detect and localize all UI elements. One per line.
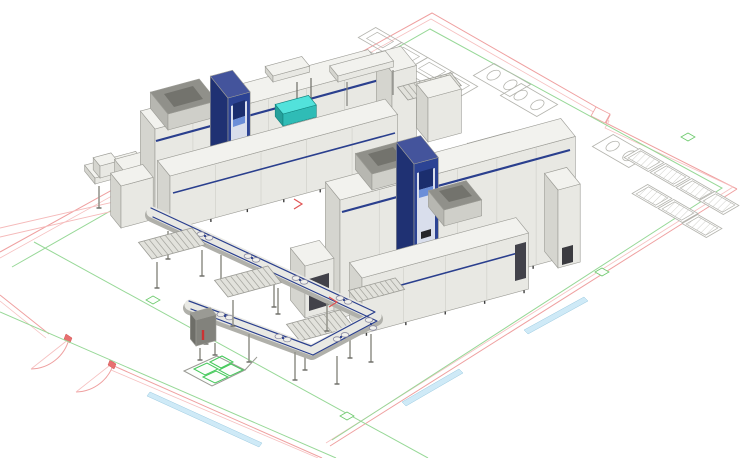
plan-symbol-kettle[interactable]	[485, 68, 502, 82]
cad-viewport	[0, 0, 750, 458]
green-node-marker	[340, 412, 354, 420]
flow-arrow	[294, 199, 302, 209]
window-strip	[147, 392, 262, 447]
tray-stack[interactable]	[225, 315, 233, 320]
tray-stack[interactable]	[204, 235, 206, 237]
plan-symbol-kettle[interactable]	[500, 84, 557, 117]
window-strip	[524, 297, 588, 334]
plan-symbol-kettle[interactable]	[473, 64, 530, 97]
tray-stack[interactable]	[344, 300, 352, 305]
plan-symbol-kettle[interactable]	[512, 88, 529, 102]
tray-stack[interactable]	[333, 337, 341, 342]
tray-stack[interactable]	[365, 318, 373, 323]
tray-stack[interactable]	[370, 323, 372, 325]
tray-stack[interactable]	[299, 279, 301, 281]
plan-symbol-table[interactable]	[367, 32, 394, 48]
tray-stack[interactable]	[205, 236, 213, 241]
tray-stack[interactable]	[217, 312, 225, 317]
tray-stack[interactable]	[369, 326, 377, 331]
tray-stack[interactable]	[275, 334, 283, 339]
wall-southwest-inner-a	[0, 301, 46, 338]
plan-symbol-kettle[interactable]	[529, 98, 546, 112]
tray-stack[interactable]	[341, 333, 349, 338]
tray-stack[interactable]	[336, 296, 344, 301]
tray-stack[interactable]	[340, 336, 342, 338]
tray-stack[interactable]	[251, 257, 253, 259]
exit-opening	[515, 242, 526, 281]
tray-stack[interactable]	[282, 337, 284, 339]
tray-stack[interactable]	[252, 258, 260, 263]
tray-stack[interactable]	[343, 299, 345, 301]
tray-stack[interactable]	[244, 254, 252, 259]
door-leaf	[76, 362, 114, 392]
floorplan-content	[0, 13, 739, 458]
tray-stack[interactable]	[224, 315, 226, 317]
cad-drawing	[0, 0, 750, 458]
green-node-marker	[146, 296, 160, 304]
door-leaf	[31, 339, 69, 369]
tray-stack[interactable]	[283, 337, 291, 342]
dispenser-slot	[562, 245, 573, 265]
green-node-marker	[681, 133, 695, 141]
tray-stack[interactable]	[292, 276, 300, 281]
tray-stack[interactable]	[300, 280, 308, 285]
wall-southwest-outer-a	[0, 295, 49, 334]
green-floor-line	[0, 312, 336, 458]
plan-symbol-kettle[interactable]	[604, 139, 621, 153]
